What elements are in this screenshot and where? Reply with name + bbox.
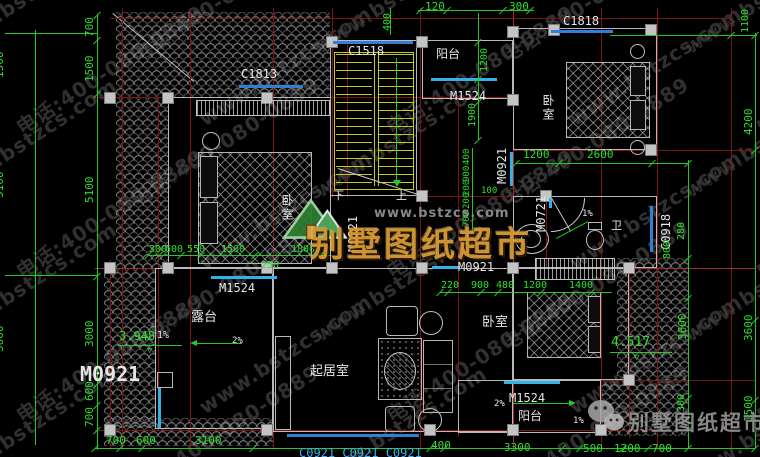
toilet-bowl (586, 230, 604, 250)
room-label-bedroom-bottom-right: 卧室 (482, 316, 508, 329)
side-table (419, 311, 443, 335)
coffee-table (384, 352, 416, 390)
pillow (588, 326, 601, 353)
door-m0921-upper (510, 152, 513, 186)
dim-top: 120 (425, 1, 445, 12)
door-m1524-top (431, 78, 497, 81)
sofa (423, 340, 453, 413)
wall-terrace (155, 268, 273, 429)
dim-mid-left: 550 (187, 245, 205, 255)
pillow (200, 156, 218, 198)
dim-line (755, 33, 756, 448)
dim-left: 3000 (84, 321, 95, 348)
dim-line (610, 35, 757, 36)
grid-line (657, 8, 658, 450)
dim-right-outer: 3600 (743, 315, 754, 342)
pillow (200, 202, 218, 244)
dim-right-inner: 280 (677, 222, 687, 240)
dim-bath-row: 900 (471, 281, 489, 291)
column (623, 374, 635, 386)
column (162, 262, 174, 274)
room-label-balcony-bottom: 阳台 (518, 410, 542, 422)
dim-line (516, 163, 688, 164)
dim-left-outer: 3000 (0, 326, 5, 353)
site-logo: www.bstzcs.com 别墅图纸超市 (282, 184, 350, 256)
dim-top-vert: 1100 (741, 9, 751, 33)
column (507, 26, 519, 38)
level-terrace: 3.948 (119, 330, 155, 342)
slope-label-bath: 1% (582, 210, 593, 219)
stair-treads-left (336, 54, 372, 184)
door-m0921-lower-left (158, 388, 161, 428)
dim-left-outer: 5100 (0, 172, 5, 199)
room-label-bedroom-top-right: 卧室 (542, 94, 554, 122)
dim-line (35, 30, 36, 445)
slope-label-balcony: 2% (494, 400, 505, 409)
dim-hall-stack: 400 (463, 149, 472, 165)
dim-left-outer: 1500 (0, 52, 5, 79)
room-label-living-room: 起居室 (310, 365, 349, 378)
dim-bath-row: 1400 (569, 281, 593, 291)
dim-bottom: 3100 (195, 435, 222, 446)
window-c0918 (650, 206, 653, 252)
door-label-m1524-left: M1524 (219, 282, 255, 294)
wechat-brand-text: 别墅图纸超市 (628, 407, 760, 437)
slope-label-terrace: 1% (157, 331, 169, 341)
slope-arrowhead (190, 340, 197, 346)
dim-bath-row: 480 (496, 281, 514, 291)
pillow (630, 100, 646, 130)
window-label-c0921-row: C0921 C0921 C0921 (299, 447, 422, 457)
column (507, 424, 519, 436)
window-c1813 (239, 85, 303, 88)
window-c0921-row (287, 434, 419, 437)
dim-top: 300 (509, 1, 529, 12)
dim-left: 1500 (84, 56, 95, 83)
dim-line (5, 275, 97, 276)
room-label-terrace: 露台 (191, 311, 217, 324)
logo-brand-text: 别墅图纸超市 (310, 217, 532, 266)
window-label-c1818: C1818 (563, 15, 599, 27)
dim-line (440, 292, 612, 293)
dim-bottom: 3300 (504, 442, 531, 453)
dim-line (688, 160, 689, 448)
door-label-m1524-bottom: M1524 (509, 392, 545, 404)
column (162, 92, 174, 104)
wechat-watermark: 别墅图纸超市 (586, 398, 626, 438)
dim-left: 700 (84, 17, 95, 37)
stair-rail (374, 54, 375, 186)
level-line-roof (610, 352, 672, 353)
column (645, 144, 657, 156)
dim-balcony-top: 1900 (468, 103, 478, 127)
dim-bottom: 700 (652, 443, 672, 454)
dim-mid-left: 1500 (221, 245, 245, 255)
stair-direction-arrow (396, 58, 397, 182)
armchair (385, 406, 415, 432)
stair-label-up: 上 (396, 190, 407, 201)
room-label-bathroom: 卫 (611, 220, 622, 231)
dim-bottom: 500 (583, 443, 603, 454)
dim-bottom: 700 (106, 435, 126, 446)
door-m0921-hall (432, 266, 460, 269)
door-label-m0921-upper: M0921 (496, 148, 508, 184)
ceiling-fan-icon (202, 132, 220, 150)
stair-rail (378, 54, 379, 186)
slope-arrowhead (569, 400, 576, 406)
dim-balcony-top: 1200 (480, 48, 490, 72)
dim-bedroom-tr: 2600 (587, 149, 614, 160)
dim-bottom: 400 (431, 440, 451, 451)
dim-top-vert: 400 (383, 13, 393, 31)
column (416, 190, 428, 202)
door-m1524-bottom (504, 381, 560, 384)
wall-line (110, 260, 111, 450)
column (104, 262, 116, 274)
dim-bath-row: 1200 (523, 281, 547, 291)
dim-left: 700 (84, 407, 95, 427)
column (104, 92, 116, 104)
dim-bedroom-tr: 1200 (523, 149, 550, 160)
dim-left: 5100 (84, 177, 95, 204)
armchair (386, 306, 418, 336)
grid-line (110, 18, 731, 19)
column (261, 424, 273, 436)
wardrobe-bottom-right-bedroom (535, 258, 615, 280)
door-label-m1524-top: M1524 (450, 90, 486, 102)
level-marker-icon: ▽ (634, 354, 639, 363)
room-label-balcony-top: 阳台 (436, 48, 460, 60)
door-label-m0721: M0721 (535, 196, 547, 232)
tv-cabinet (275, 336, 291, 430)
dim-bottom: 600 (136, 435, 156, 446)
terrace-drain-box (157, 372, 173, 388)
lamp-icon (630, 140, 645, 155)
level-bedroom-roof: 4.517 (611, 336, 650, 349)
column (623, 262, 635, 274)
lamp-icon (630, 44, 645, 59)
dim-right-inner: 3600 (677, 314, 688, 341)
pillow (630, 66, 646, 96)
wechat-icon (586, 398, 626, 434)
dim-right-outer: 4200 (743, 109, 754, 136)
wardrobe-left-bedroom (196, 100, 330, 116)
column (507, 94, 519, 106)
dim-right-inner: 800 (663, 241, 673, 259)
dim-hall-small: 100 (481, 187, 497, 196)
floorplan-canvas: www.bstzcs.com电话:400-080-0889www.bstzcs.… (0, 0, 760, 457)
pillow (588, 296, 601, 323)
grid-line (731, 8, 732, 450)
column (416, 36, 428, 48)
dim-left: 600 (84, 381, 95, 401)
toilet-tank (588, 222, 602, 230)
door-m1524-left (211, 276, 277, 279)
window-label-c1813: C1813 (241, 68, 277, 80)
dim-bath-row: 220 (441, 281, 459, 291)
level-marker-icon: ▽ (147, 347, 152, 356)
window-label-c1518: C1518 (348, 45, 384, 57)
slope-label-roof-right: 1% (573, 417, 584, 426)
dim-mid-left: 250 (261, 261, 279, 271)
window-c1818 (551, 30, 613, 33)
slope-label-terrace2: 2% (232, 337, 243, 346)
dim-bottom: 1200 (614, 443, 641, 454)
dim-mid-left: 600 (165, 245, 183, 255)
